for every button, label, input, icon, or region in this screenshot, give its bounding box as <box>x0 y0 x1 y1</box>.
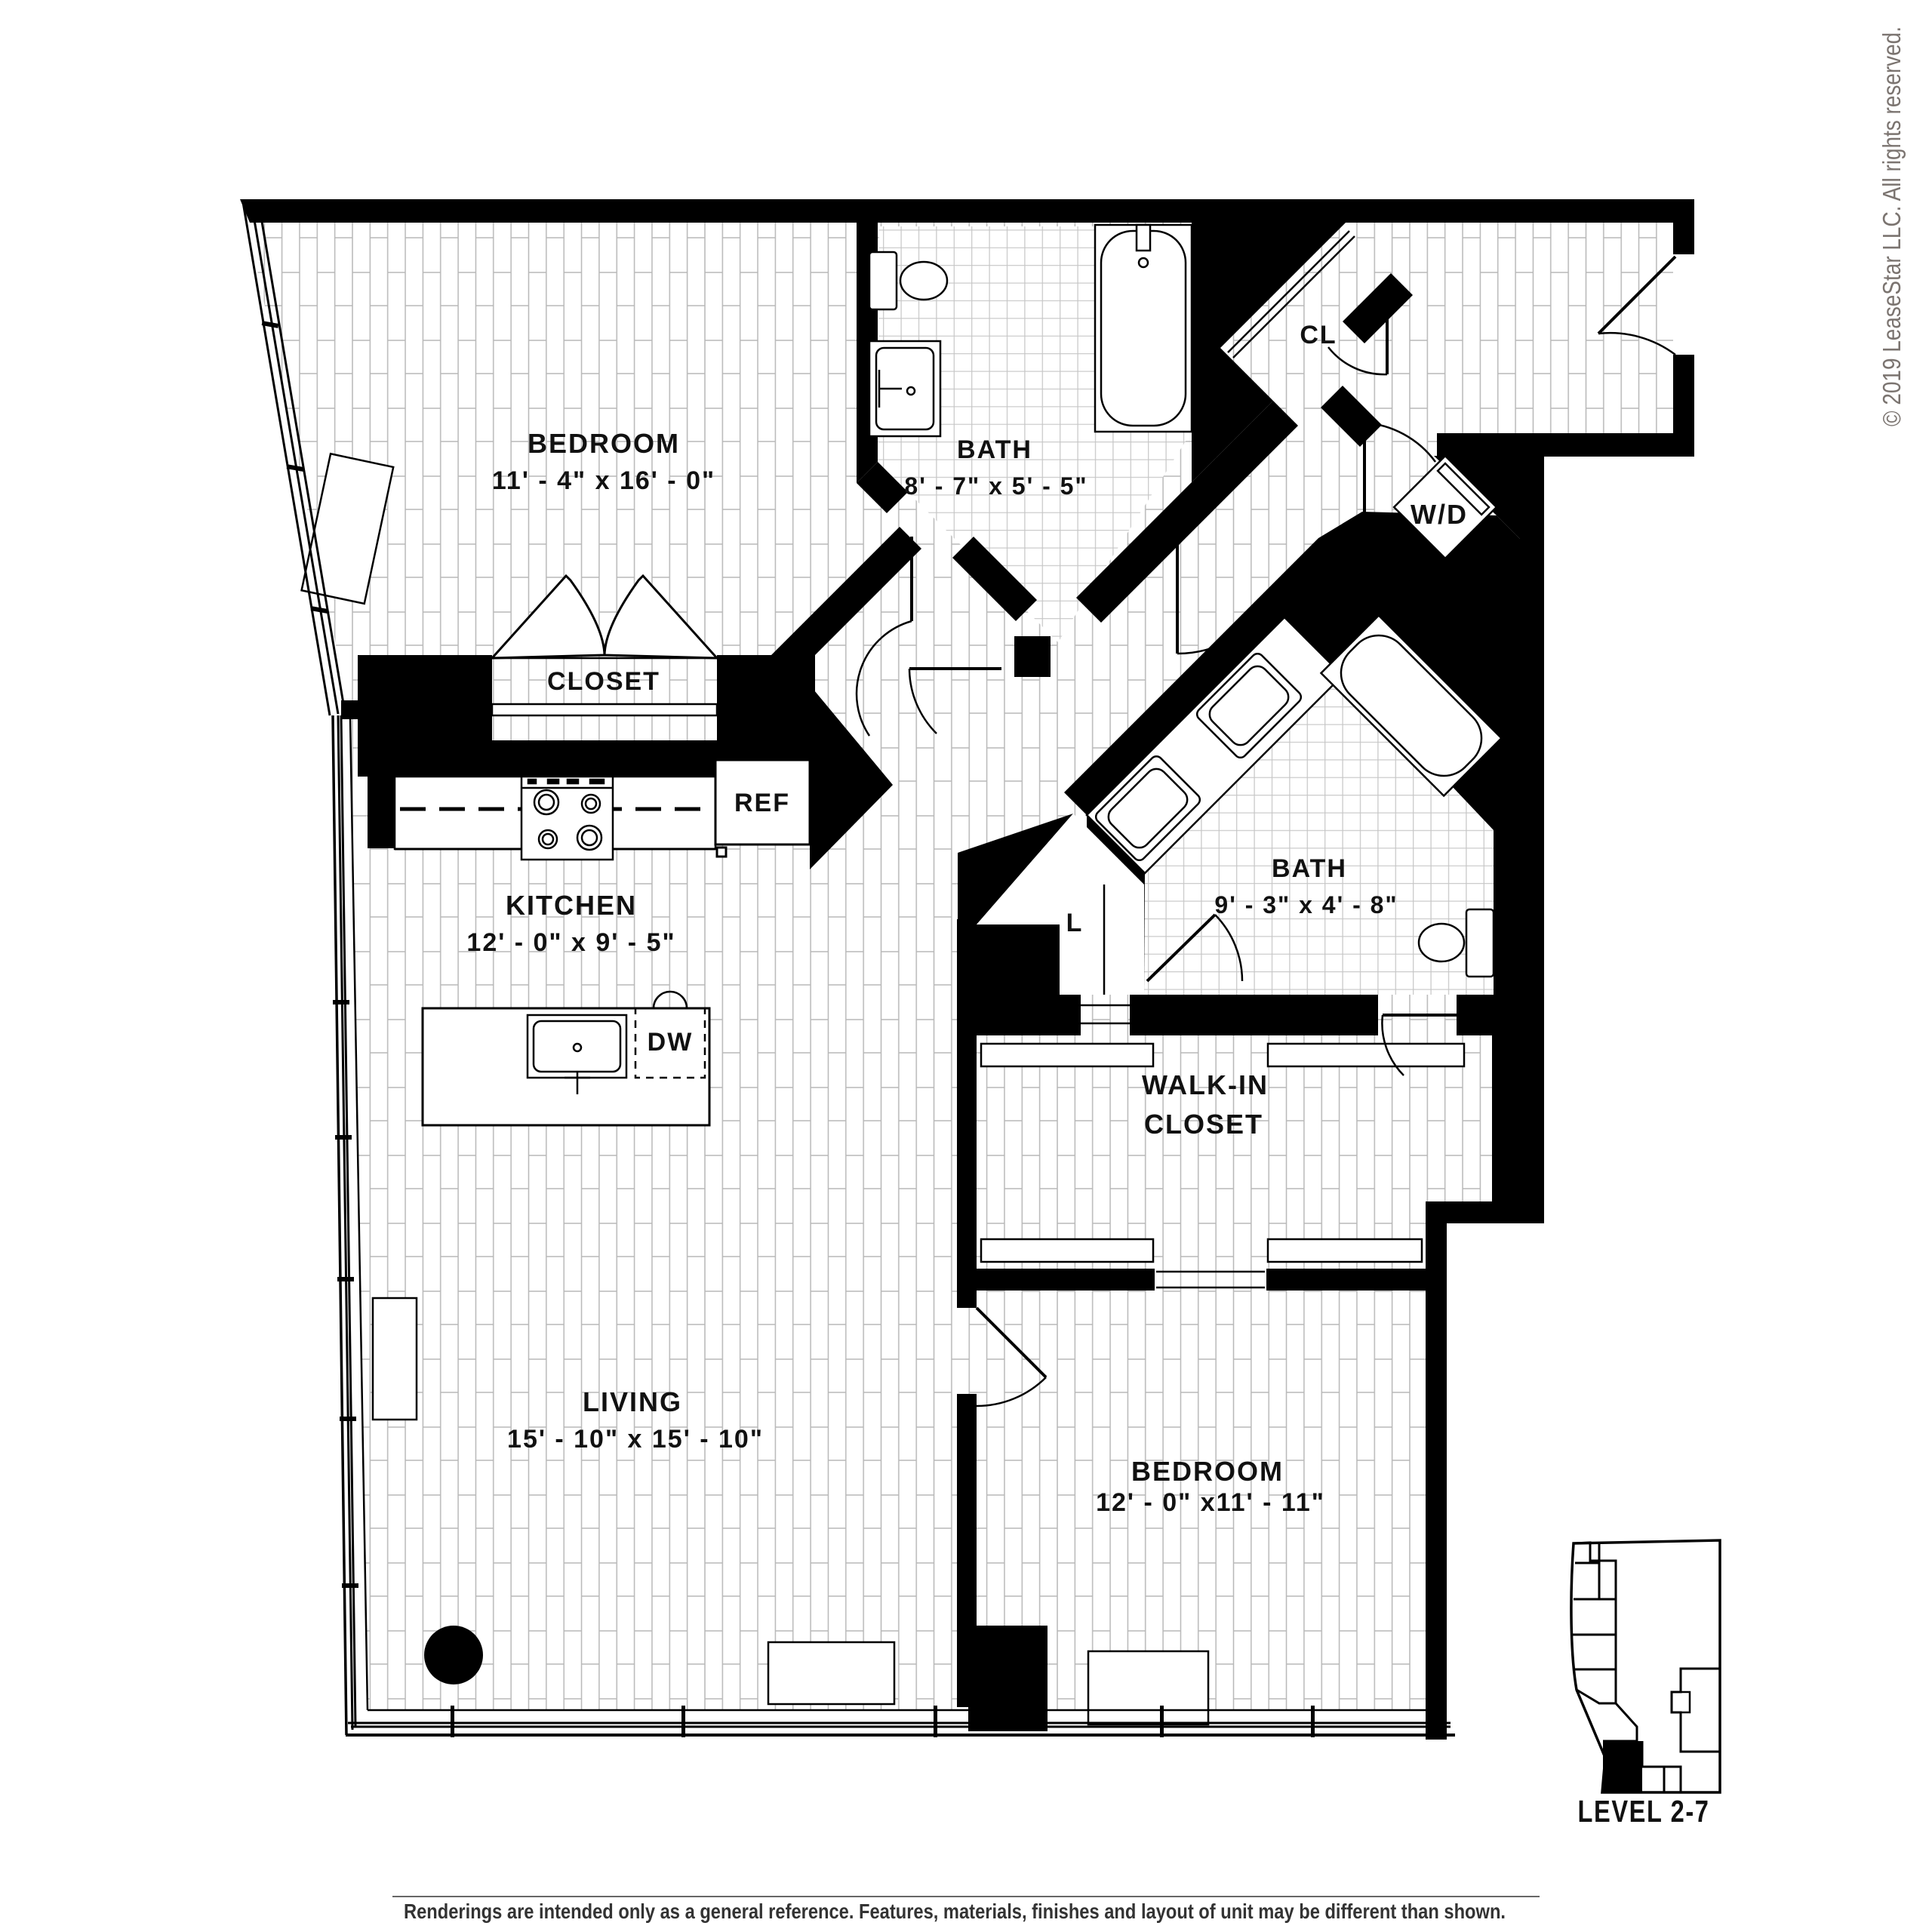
svg-text:L: L <box>1066 909 1084 937</box>
svg-text:W/D: W/D <box>1411 499 1468 530</box>
svg-text:12' - 0" x 9' - 5": 12' - 0" x 9' - 5" <box>466 928 675 957</box>
svg-text:9' - 3" x 4' - 8": 9' - 3" x 4' - 8" <box>1214 891 1398 918</box>
svg-text:8' - 7" x 5' - 5": 8' - 7" x 5' - 5" <box>904 472 1088 500</box>
svg-text:LEVEL 2-7: LEVEL 2-7 <box>1578 1794 1710 1829</box>
svg-text:LIVING: LIVING <box>583 1386 682 1417</box>
svg-text:REF: REF <box>734 789 790 817</box>
svg-text:CL: CL <box>1300 321 1337 349</box>
svg-text:WALK-IN: WALK-IN <box>1142 1069 1269 1100</box>
svg-text:BATH: BATH <box>1272 854 1347 883</box>
svg-text:15' - 10" x 15' - 10": 15' - 10" x 15' - 10" <box>507 1425 764 1454</box>
svg-text:BEDROOM: BEDROOM <box>528 428 680 459</box>
svg-text:KITCHEN: KITCHEN <box>506 890 637 921</box>
svg-text:© 2019 LeaseStar LLC. All righ: © 2019 LeaseStar LLC. All rights reserve… <box>1878 26 1906 426</box>
svg-text:12' - 0" x11' - 11": 12' - 0" x11' - 11" <box>1096 1488 1325 1517</box>
svg-text:Renderings are intended only a: Renderings are intended only as a genera… <box>404 1900 1506 1923</box>
svg-text:CLOSET: CLOSET <box>547 667 660 696</box>
svg-text:BATH: BATH <box>957 435 1032 464</box>
svg-text:DW: DW <box>648 1028 694 1057</box>
svg-text:11' - 4" x 16' - 0": 11' - 4" x 16' - 0" <box>492 466 715 495</box>
svg-text:CLOSET: CLOSET <box>1144 1109 1263 1140</box>
svg-text:BEDROOM: BEDROOM <box>1131 1456 1284 1487</box>
